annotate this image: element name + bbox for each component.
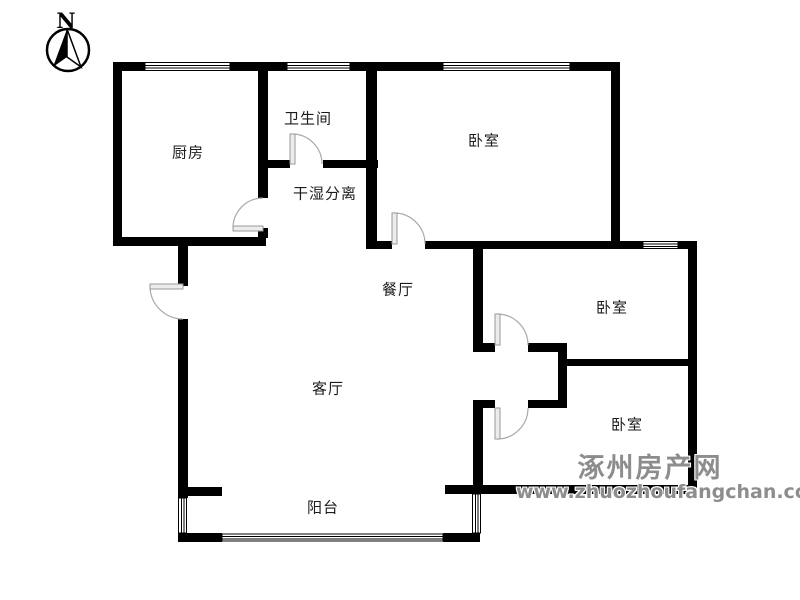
room-label-bedroom-bottom: 卧室 — [611, 414, 643, 435]
entry-door-arc — [150, 286, 183, 319]
kitchen-door-arc — [233, 198, 263, 228]
kitchen-door-panel — [233, 226, 263, 231]
watermark-site-url: www.zhuozhoufangchan.com — [516, 483, 784, 503]
bedroom-top-door-arc — [394, 213, 425, 244]
room-label-dining: 餐厅 — [382, 279, 414, 300]
bedroom-middle-door-panel — [495, 314, 500, 345]
floor-plan: N 厨房 卫生间 干湿分离 卧室 卧室 卧室 餐厅 客厅 阳台 涿州房产网 ww… — [0, 0, 800, 600]
watermark: 涿州房产网 www.zhuozhoufangchan.com — [516, 455, 784, 503]
compass-icon: N — [47, 8, 89, 71]
bathroom-door-panel — [290, 134, 295, 164]
room-label-balcony: 阳台 — [307, 497, 339, 518]
bathroom-door-arc — [292, 134, 322, 164]
compass-needle-light-half — [67, 29, 81, 67]
bedroom-bottom-door-arc — [497, 408, 528, 439]
watermark-site-name: 涿州房产网 — [516, 455, 784, 483]
room-label-dry-wet-separation: 干湿分离 — [293, 183, 357, 204]
entry-door-panel — [150, 284, 183, 289]
bedroom-top-door-panel — [392, 213, 397, 244]
room-label-living: 客厅 — [312, 378, 344, 399]
room-label-bedroom-top: 卧室 — [468, 130, 500, 151]
room-label-kitchen: 厨房 — [172, 142, 204, 163]
bedroom-bottom-door-panel — [495, 408, 500, 439]
room-label-bathroom: 卫生间 — [284, 108, 332, 129]
room-label-bedroom-middle: 卧室 — [596, 297, 628, 318]
floor-plan-drawing: N — [0, 0, 800, 600]
bedroom-middle-door-arc — [497, 314, 528, 345]
